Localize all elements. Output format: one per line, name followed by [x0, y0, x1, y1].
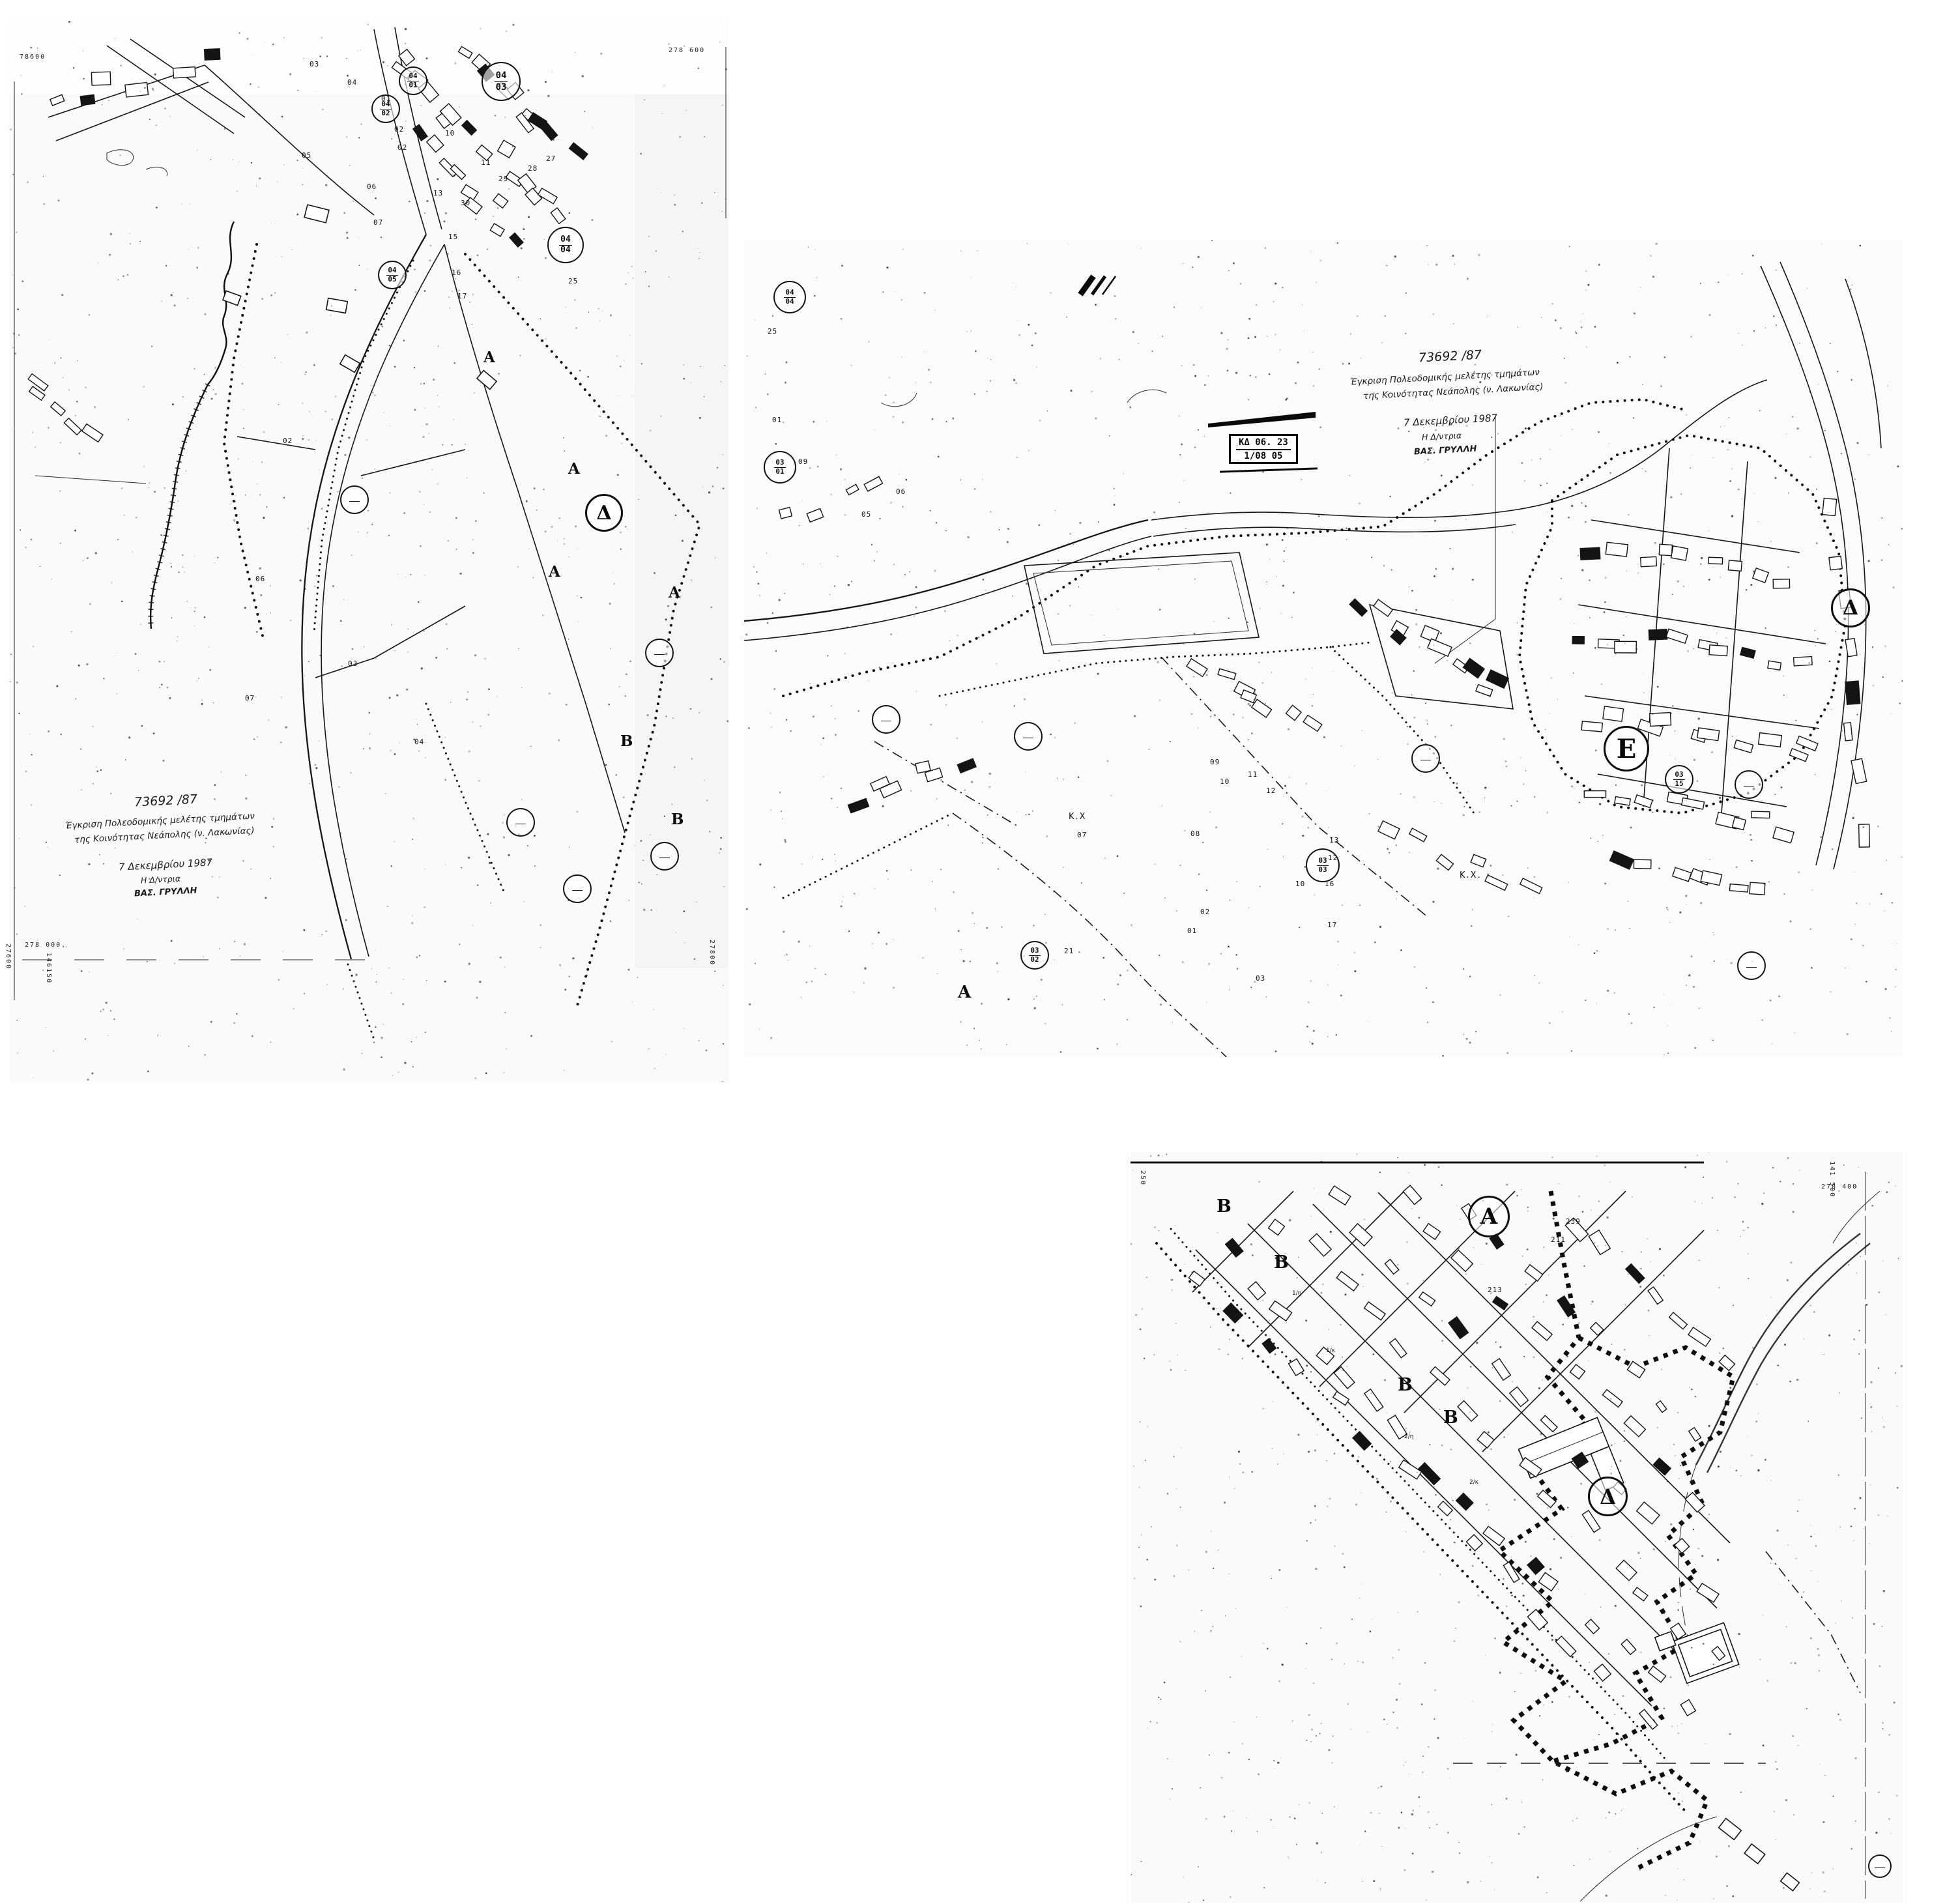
- parcel-number: 02: [397, 143, 407, 152]
- block-marker-illegible: [1737, 951, 1766, 980]
- block-marker: 0404: [547, 227, 584, 263]
- parcel-number: 03: [310, 60, 319, 68]
- parcel-number: 07: [373, 218, 383, 227]
- parcel-number: 03: [348, 659, 358, 668]
- parcel-number: 30: [461, 199, 470, 207]
- parcel-number: 02: [283, 437, 293, 445]
- parcel-number: 06: [896, 487, 906, 496]
- parcel-number: 10: [1220, 777, 1230, 786]
- area-label: Κ.Χ: [1069, 812, 1087, 822]
- parcel-number: 25: [768, 327, 777, 336]
- stamp-line2: 1/08 05: [1236, 450, 1291, 461]
- grid-label: 278 600: [669, 47, 705, 54]
- parcel-number: 28: [528, 164, 538, 173]
- block-marker-illegible: [872, 705, 900, 734]
- zone-letter-circled: Δ: [585, 494, 623, 532]
- parcel-number: 16: [452, 268, 461, 277]
- parcel-number: 10: [445, 129, 455, 137]
- scanned-map-document: 78600 278 600 278 000. 146150 27600 2780…: [0, 0, 1945, 1904]
- zone-letter: Β: [1217, 1196, 1232, 1217]
- plot-number: 211: [1551, 1235, 1566, 1244]
- parcel-number: 03: [1256, 974, 1265, 983]
- floor-label: 2/κ: [1469, 1479, 1478, 1486]
- parcel-number: 16: [1325, 880, 1334, 888]
- parcel-number: 06: [255, 575, 265, 583]
- parcel-number: 02: [1200, 908, 1210, 916]
- grid-label: 278 400: [1821, 1183, 1858, 1190]
- parcel-number: 07: [245, 694, 255, 702]
- stamp-line1: ΚΔ 06. 23: [1236, 437, 1291, 450]
- zone-letter: Α: [483, 349, 495, 366]
- floor-label: 1/κ: [1326, 1348, 1335, 1354]
- block-marker-illegible: [645, 639, 674, 667]
- parcel-number: 27: [546, 154, 556, 163]
- zone-letter: Β: [671, 811, 684, 828]
- parcel-number: 09: [798, 457, 808, 466]
- parcel-number: 11: [481, 158, 491, 167]
- grid-label: 250: [1139, 1170, 1146, 1186]
- parcel-number: 06: [367, 182, 377, 191]
- parcel-number: 11: [1248, 770, 1258, 779]
- parcel-number: 05: [302, 151, 311, 160]
- parcel-number: 04: [414, 738, 424, 746]
- zone-letter: Α: [669, 584, 680, 601]
- parcel-number: 04: [347, 78, 357, 87]
- parcel-number: 13: [1329, 836, 1339, 844]
- block-marker-illegible: [340, 485, 369, 514]
- registry-stamp: ΚΔ 06. 23 1/08 05: [1229, 434, 1298, 464]
- zone-letter: Β: [1443, 1407, 1458, 1428]
- block-marker-illegible: [1411, 744, 1440, 773]
- parcel-number: 09: [1210, 758, 1220, 766]
- approval-signature-role: Η Δ/ντρια: [1422, 430, 1462, 442]
- block-marker: 0404: [773, 281, 806, 313]
- block-marker: 0315: [1665, 765, 1693, 794]
- block-marker-illegible: [1014, 722, 1043, 751]
- block-marker-illegible: [563, 874, 592, 903]
- plot-number: 239: [1566, 1217, 1581, 1226]
- area-label: Κ.Χ.: [1460, 871, 1482, 880]
- plot-number: 213: [1488, 1286, 1503, 1294]
- zone-letter: Β: [1398, 1375, 1413, 1395]
- block-marker-illegible: [650, 842, 679, 871]
- parcel-number: 21: [1064, 947, 1074, 955]
- zone-letter: Β: [1274, 1252, 1289, 1273]
- parcel-number: 02: [394, 125, 404, 134]
- grid-label: 141 500: [1828, 1161, 1836, 1198]
- parcel-number: 10: [1295, 880, 1305, 888]
- approval-signature-role: Η Δ/ντρια: [141, 873, 181, 885]
- grid-label: 146150: [45, 953, 52, 984]
- zone-letter-circled: Ε: [1604, 726, 1649, 772]
- parcel-number: 08: [1190, 829, 1200, 838]
- parcel-number: 17: [1327, 921, 1337, 929]
- zone-letter-circled: Δ: [1831, 588, 1870, 627]
- block-marker: 0301: [764, 451, 796, 483]
- map-linework-left: [9, 20, 728, 1082]
- parcel-number: 12: [1266, 786, 1276, 795]
- zone-letter: Α: [958, 983, 971, 1002]
- parcel-number: 25: [568, 277, 578, 285]
- block-marker-illegible: [1735, 770, 1763, 799]
- sheet-center: 73692 /87 Έγκριση Πολεοδομικής μελέτης τ…: [744, 240, 1903, 1057]
- map-linework-center: [744, 240, 1903, 1057]
- parcel-number: 05: [861, 510, 871, 519]
- grid-label: 27800: [708, 940, 715, 966]
- grid-label: 27600: [5, 944, 12, 970]
- block-marker: 0401: [399, 66, 427, 95]
- map-linework-bottom: [1131, 1152, 1903, 1903]
- grid-label: 278 000.: [25, 942, 66, 949]
- parcel-number: 01: [1187, 927, 1197, 935]
- block-marker-illegible: [1868, 1854, 1892, 1878]
- sheet-left: 78600 278 600 278 000. 146150 27600 2780…: [9, 20, 728, 1082]
- parcel-number: 01: [772, 416, 782, 424]
- block-marker-illegible: [506, 808, 535, 837]
- zone-letter-circled: Α: [1468, 1196, 1510, 1237]
- stamp-bar: [1208, 411, 1319, 430]
- block-marker: 0302: [1020, 941, 1049, 970]
- sheet-bottom: 141 500 278 400 250 Α Δ Β Β Β Β 239 211 …: [1131, 1152, 1903, 1903]
- parcel-number: 15: [448, 233, 458, 241]
- zone-letter: Β: [620, 732, 633, 750]
- zone-letter: Α: [568, 460, 580, 478]
- parcel-number: 17: [457, 292, 467, 300]
- floor-label: 1/η: [1292, 1290, 1301, 1297]
- zone-letter-circled: Δ: [1588, 1477, 1628, 1516]
- block-marker: 0403: [482, 62, 521, 101]
- floor-label: 2/η: [1404, 1434, 1413, 1440]
- zone-letter: Α: [549, 563, 560, 581]
- parcel-number: 01: [381, 94, 391, 103]
- parcel-number: 12: [1328, 854, 1338, 862]
- block-marker: 0405: [378, 261, 407, 289]
- parcel-number: 13: [433, 189, 443, 197]
- parcel-number: 29: [498, 175, 508, 183]
- parcel-number: 07: [1077, 831, 1087, 839]
- grid-label: 78600: [20, 53, 46, 61]
